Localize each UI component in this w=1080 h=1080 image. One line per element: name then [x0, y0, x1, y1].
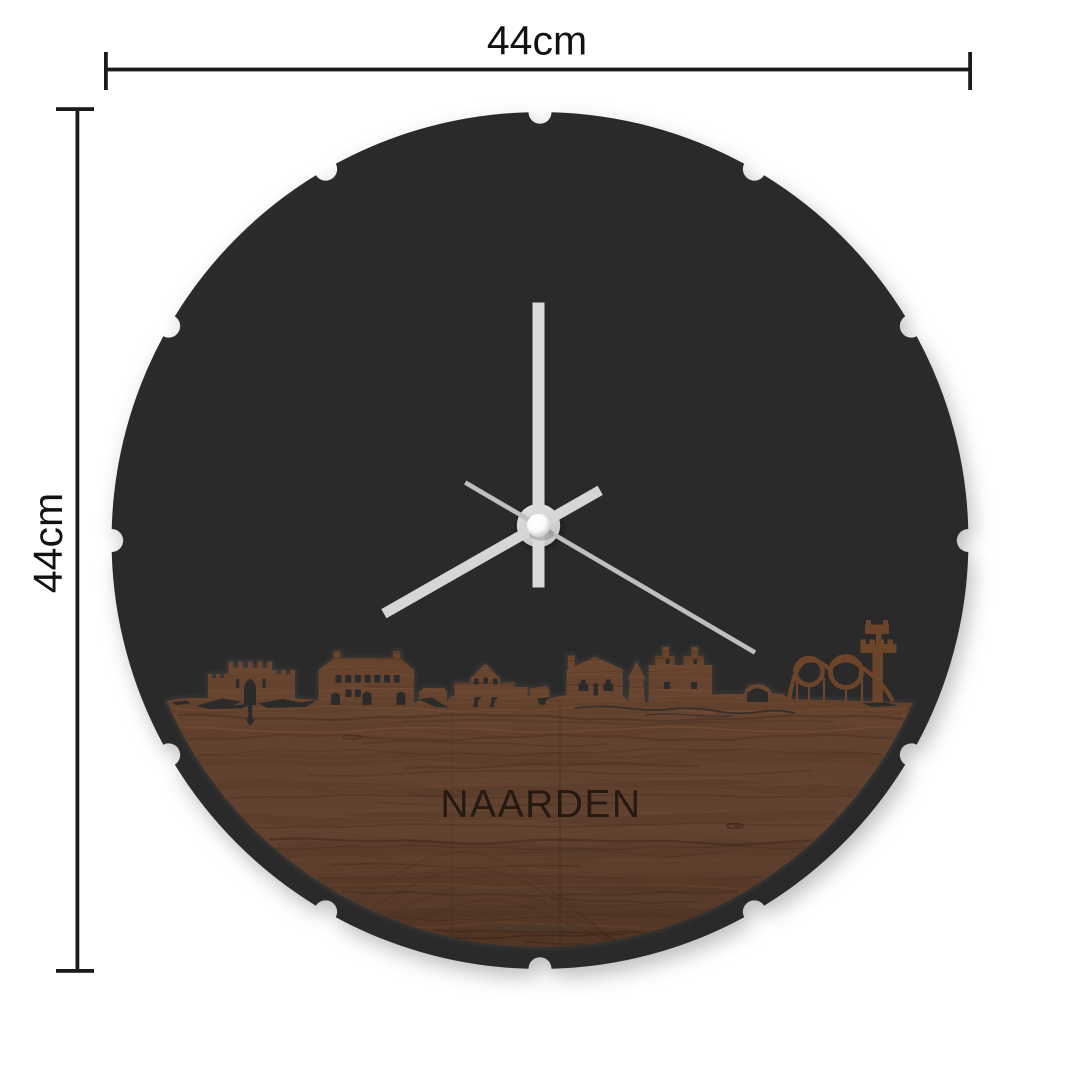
svg-text:44cm: 44cm — [487, 18, 587, 64]
svg-text:WoodWideCities: WoodWideCities — [493, 920, 584, 934]
svg-text:44cm: 44cm — [25, 493, 71, 593]
svg-text:NAARDEN: NAARDEN — [440, 783, 641, 826]
